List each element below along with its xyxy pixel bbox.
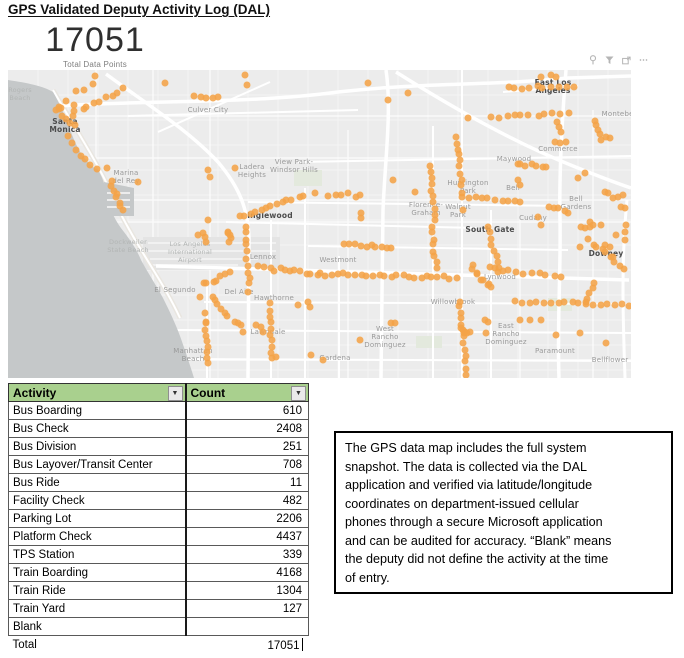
map-data-point [200, 230, 207, 237]
count-cell: 610 [186, 402, 309, 420]
map-data-point [457, 182, 464, 189]
map-data-point [458, 194, 465, 201]
map-data-point [120, 85, 127, 92]
activity-header-label: Activity [13, 386, 56, 400]
map-data-point [577, 330, 584, 337]
map-data-point [104, 165, 111, 172]
table-row[interactable]: Bus Layover/Transit Center708 [9, 456, 309, 474]
map-data-point [232, 165, 239, 172]
count-cell: 708 [186, 456, 309, 474]
map-data-point [590, 222, 597, 229]
map-data-point [203, 239, 210, 246]
map-data-point [296, 267, 303, 274]
map-data-point [461, 358, 468, 365]
map-data-point [512, 268, 519, 275]
map-data-point [511, 297, 518, 304]
map-data-point [338, 192, 345, 199]
map-data-point [487, 284, 494, 291]
map-data-point [244, 262, 251, 269]
map-data-point [288, 196, 295, 203]
table-row[interactable]: Train Yard127 [9, 600, 309, 618]
count-cell: 17051 [186, 636, 309, 654]
map-data-point [520, 270, 527, 277]
activity-column-header: Activity ▼ [9, 384, 186, 402]
map-data-point [215, 94, 222, 101]
map-label-view-park-windsor-hills: View Park- Windsor Hills [270, 158, 318, 174]
count-cell: 4437 [186, 528, 309, 546]
map-data-point [433, 273, 440, 280]
map-data-point [226, 239, 233, 246]
map-data-point [558, 129, 565, 136]
map-data-point [541, 111, 548, 118]
map-data-point [525, 111, 532, 118]
note-line: coordinates on department-issued cellula… [345, 495, 662, 514]
map-data-point [474, 270, 481, 277]
map-data-point [582, 170, 589, 177]
map-label-ladera-heights: Ladera Heights [238, 163, 266, 179]
map-data-point [555, 205, 562, 212]
map-label-montebello: Montebello [602, 110, 631, 118]
map-data-point [307, 304, 314, 311]
count-column-header: Count ▼ [186, 384, 309, 402]
map-data-point [613, 232, 620, 239]
map-data-point [445, 276, 452, 283]
map-data-point [607, 135, 614, 142]
map-data-point [325, 193, 332, 200]
map-data-point [532, 163, 539, 170]
count-cell: 127 [186, 600, 309, 618]
table-row[interactable]: Train Boarding4168 [9, 564, 309, 582]
map-data-point [528, 269, 535, 276]
map-data-point [488, 114, 495, 121]
table-row[interactable]: Bus Ride11 [9, 474, 309, 492]
map-data-point [517, 199, 524, 206]
table-row[interactable]: Bus Division251 [9, 438, 309, 456]
table-row[interactable]: Train Ride1304 [9, 582, 309, 600]
map-data-point [365, 80, 372, 87]
map-data-point [242, 72, 249, 79]
table-row[interactable]: Bus Check2408 [9, 420, 309, 438]
map-label-hawthorne: Hawthorne [254, 294, 294, 302]
map-data-point [205, 360, 212, 367]
map-data-point [607, 244, 614, 251]
map-data-point [577, 244, 584, 251]
map-data-point [535, 214, 542, 221]
activity-cell: Blank [9, 618, 186, 636]
map-data-point [385, 97, 392, 104]
map-label-lennox: Lennox [250, 253, 276, 261]
map-data-point [622, 205, 629, 212]
map-data-point [539, 85, 546, 92]
map-data-point [86, 162, 93, 169]
map-data-point [240, 212, 247, 219]
note-line: phones through a secure Microsoft applic… [345, 513, 662, 532]
activity-cell: Facility Check [9, 492, 186, 510]
note-line: and can be audited for accuracy. “Blank”… [345, 532, 662, 551]
count-cell: 339 [186, 546, 309, 564]
map-data-point [273, 354, 280, 361]
table-row[interactable]: Blank [9, 618, 309, 636]
map-data-point [486, 228, 493, 235]
map-data-point [538, 317, 545, 324]
total-data-points-card: 17051 Total Data Points [37, 22, 153, 69]
map-data-point [454, 275, 461, 282]
map-data-point [460, 207, 467, 214]
count-cell: 11 [186, 474, 309, 492]
map-data-point [622, 229, 629, 236]
map-data-point [72, 122, 79, 129]
note-line: The GPS data map includes the full syste… [345, 439, 662, 458]
map-data-point [203, 279, 210, 286]
map-data-point [393, 271, 400, 278]
map-data-point [90, 81, 97, 88]
map-data-point [207, 174, 214, 181]
map-data-point [593, 243, 600, 250]
map-data-point [458, 325, 465, 332]
map-data-point [405, 90, 412, 97]
map-data-point [538, 222, 545, 229]
map-data-point [357, 337, 364, 344]
map-data-point [238, 322, 245, 329]
map-data-point [589, 301, 596, 308]
map-data-point [244, 288, 251, 295]
map-data-point [565, 110, 572, 117]
map-data-point [519, 299, 526, 306]
map-data-point [381, 273, 388, 280]
map-data-point [556, 84, 563, 91]
count-cell: 251 [186, 438, 309, 456]
map-data-point [527, 317, 534, 324]
map-data-point [618, 301, 625, 308]
map-data-point [431, 216, 438, 223]
map-data-point [300, 192, 307, 199]
map-data-point [553, 74, 560, 81]
map-label-huntington-park: Huntington Park [447, 179, 488, 195]
focus-mode-icon[interactable] [622, 55, 631, 65]
map-data-point [92, 73, 99, 80]
map-data-point [357, 192, 364, 199]
map-data-point [227, 269, 234, 276]
map-data-point [267, 319, 274, 326]
map-data-point [94, 166, 101, 173]
map-data-point [260, 264, 267, 271]
map-data-point [387, 245, 394, 252]
activity-cell: Total [9, 636, 186, 654]
activity-cell: Train Ride [9, 582, 186, 600]
map-data-point [242, 228, 249, 235]
table-row[interactable]: Parking Lot2206 [9, 510, 309, 528]
map-data-point [571, 83, 578, 90]
count-cell: 2206 [186, 510, 309, 528]
map-data-point [504, 267, 511, 274]
map-data-point [243, 247, 250, 254]
map-data-point [465, 115, 472, 122]
count-header-label: Count [191, 386, 226, 400]
map-label-dockweiler-state-beach: Dockweiler State Beach [107, 238, 149, 254]
text-cursor [302, 638, 303, 651]
map-data-point [412, 189, 419, 196]
table-row[interactable]: Facility Check482 [9, 492, 309, 510]
map-data-point [63, 98, 70, 105]
note-line: application and verified via latitude/lo… [345, 476, 662, 495]
map-data-point [517, 317, 524, 324]
map-data-point [467, 329, 474, 336]
map-data-point [358, 215, 365, 222]
map-data-point [626, 303, 631, 310]
map-label-west-rancho-dominguez: West Rancho Dominguez [364, 325, 406, 349]
map-data-point [485, 319, 492, 326]
table-row[interactable]: Platform Check4437 [9, 528, 309, 546]
activity-cell: Bus Division [9, 438, 186, 456]
map-data-point [434, 265, 441, 272]
map-data-point [390, 177, 397, 184]
map-data-point [541, 272, 548, 279]
map-data-point [575, 175, 582, 182]
map-data-point [266, 300, 273, 307]
map-label-paramount: Paramount [535, 347, 575, 355]
map-data-point [429, 241, 436, 248]
card-value: 17051 [37, 22, 153, 58]
activity-cell: Bus Layover/Transit Center [9, 456, 186, 474]
map-data-point [203, 319, 210, 326]
page-title: GPS Validated Deputy Activity Log (DAL) [8, 2, 270, 17]
map-data-point [96, 99, 103, 106]
map-data-point [556, 111, 563, 118]
activity-cell: Train Yard [9, 600, 186, 618]
map-data-point [205, 167, 212, 174]
map-data-point [495, 269, 502, 276]
map-data-point [623, 222, 630, 229]
map-data-point [459, 340, 466, 347]
map-label-westmont: Westmont [319, 256, 356, 264]
map-data-point [456, 163, 463, 170]
activity-cell: Bus Ride [9, 474, 186, 492]
map-data-point [71, 102, 78, 109]
note-line: of entry. [345, 569, 662, 588]
map-label-cudahy: Cudahy [519, 214, 547, 222]
map-data-point [491, 197, 498, 204]
activity-cell: Bus Boarding [9, 402, 186, 420]
map-data-point [240, 329, 247, 336]
count-filter-button[interactable]: ▼ [291, 386, 306, 401]
map-label-willowbrook: Willowbrook [431, 298, 476, 306]
count-cell: 2408 [186, 420, 309, 438]
map-data-point [574, 299, 581, 306]
map-data-point [345, 190, 352, 197]
map-data-point [560, 299, 567, 306]
map-data-point [73, 88, 80, 95]
map-data-point [312, 190, 319, 197]
activity-cell: Platform Check [9, 528, 186, 546]
table-row[interactable]: TPS Station339 [9, 546, 309, 564]
map-data-point [308, 352, 315, 359]
map-data-point [197, 294, 204, 301]
table-row[interactable]: Bus Boarding610 [9, 402, 309, 420]
map-data-point [429, 229, 436, 236]
map-data-point [543, 163, 550, 170]
map-data-point [392, 320, 399, 327]
count-cell [186, 618, 309, 636]
note-line: snapshot. The data is collected via the … [345, 458, 662, 477]
activity-cell: Bus Check [9, 420, 186, 438]
map-data-point [565, 210, 572, 217]
map-data-point [557, 273, 564, 280]
table-header-row: Activity ▼ Count ▼ [9, 384, 309, 402]
map-data-point [224, 313, 231, 320]
map-data-point [135, 179, 142, 186]
map-data-point [463, 371, 470, 378]
map-data-point [622, 237, 629, 244]
gps-map[interactable]: Rogers BeachSanta MonicaCulver CityMarin… [8, 70, 631, 378]
map-data-point [553, 332, 560, 339]
table-row[interactable]: Total17051 [9, 636, 309, 654]
map-data-point [57, 105, 64, 112]
map-data-point [81, 87, 88, 94]
activity-table: Activity ▼ Count ▼ Bus Boarding610Bus Ch… [8, 383, 309, 653]
map-data-point [533, 298, 540, 305]
map-data-point [495, 114, 502, 121]
filter-icon[interactable] [605, 55, 614, 65]
note-line: the deputy did not define the activity a… [345, 550, 662, 569]
map-data-point [370, 273, 377, 280]
map-label-east-rancho-dominguez: East Rancho Dominguez [485, 322, 527, 346]
map-data-point [603, 301, 610, 308]
map-data-point [538, 74, 545, 81]
map-data-point [620, 192, 627, 199]
map-data-point [585, 236, 592, 243]
map-data-point [119, 206, 126, 213]
map-data-point [564, 83, 571, 90]
map-label-el-segundo: El Segundo [154, 286, 195, 294]
map-data-point [205, 217, 212, 224]
activity-filter-button[interactable]: ▼ [168, 386, 183, 401]
map-data-point [202, 310, 209, 317]
pin-icon[interactable] [588, 55, 597, 65]
activity-cell: Parking Lot [9, 510, 186, 528]
map-data-point [483, 330, 490, 337]
note-box: The GPS data map includes the full syste… [334, 431, 673, 594]
map-data-point [270, 267, 277, 274]
map-data-point [510, 85, 517, 92]
map-data-point [603, 340, 610, 347]
count-cell: 1304 [186, 582, 309, 600]
map-data-point [113, 89, 120, 96]
map-data-point [410, 274, 417, 281]
map-label-bellflower: Bellflower [592, 356, 629, 364]
map-data-point [540, 300, 547, 307]
map-label-culver-city: Culver City [188, 106, 229, 114]
map-data-point [266, 203, 273, 210]
map-data-point [484, 194, 491, 201]
map-label-rogers-beach: Rogers Beach [8, 86, 32, 102]
map-data-point [65, 133, 72, 140]
more-options-icon[interactable] [639, 55, 648, 65]
map-data-point [307, 271, 314, 278]
map-data-point [517, 111, 524, 118]
activity-cell: TPS Station [9, 546, 186, 564]
map-data-point [162, 80, 169, 87]
map-data-point [517, 182, 524, 189]
map-data-point [563, 139, 570, 146]
map-data-point [295, 302, 302, 309]
count-cell: 4168 [186, 564, 309, 582]
map-label-walnut-park: Walnut Park [445, 203, 471, 219]
map-data-point [244, 82, 251, 89]
map-data-point [83, 103, 90, 110]
map-data-point [260, 329, 267, 336]
map-data-point [505, 198, 512, 205]
map-data-point [548, 299, 555, 306]
map-data-point [620, 265, 627, 272]
map-data-point [525, 84, 532, 91]
activity-cell: Train Boarding [9, 564, 186, 582]
map-data-point [320, 357, 327, 364]
map-data-point [549, 109, 556, 116]
visual-header-toolbar [588, 55, 648, 65]
map-data-point [548, 83, 555, 90]
count-cell: 482 [186, 492, 309, 510]
map-data-point [598, 222, 605, 229]
card-label: Total Data Points [37, 60, 153, 69]
report-page: GPS Validated Deputy Activity Log (DAL) … [0, 0, 684, 658]
map-data-point [245, 280, 252, 287]
